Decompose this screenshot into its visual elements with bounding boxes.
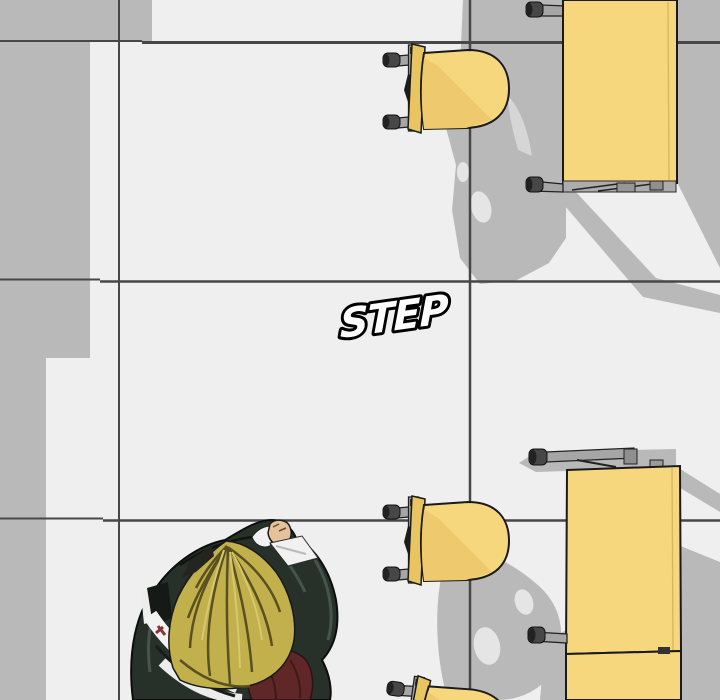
desk-top bbox=[563, 0, 677, 183]
desk-leg-cap-end bbox=[526, 178, 533, 191]
desk-leg-bracket bbox=[624, 449, 637, 464]
desk-underframe-bracket bbox=[650, 181, 663, 190]
desk-top-upper bbox=[566, 466, 681, 654]
shadow-hole bbox=[457, 162, 469, 182]
desk-joint-mark bbox=[658, 647, 670, 654]
desk-leg-cap-end bbox=[529, 628, 536, 642]
webtoon-panel: STEP bbox=[0, 0, 720, 700]
desk-underframe-foot bbox=[617, 183, 635, 192]
desk-top-lower bbox=[566, 651, 681, 700]
desk-leg-cap-end bbox=[526, 3, 533, 16]
panel-art: STEP bbox=[0, 0, 720, 700]
bottom-desk-right-shadow-b bbox=[678, 545, 720, 700]
desk-leg-cap-end bbox=[530, 450, 537, 464]
